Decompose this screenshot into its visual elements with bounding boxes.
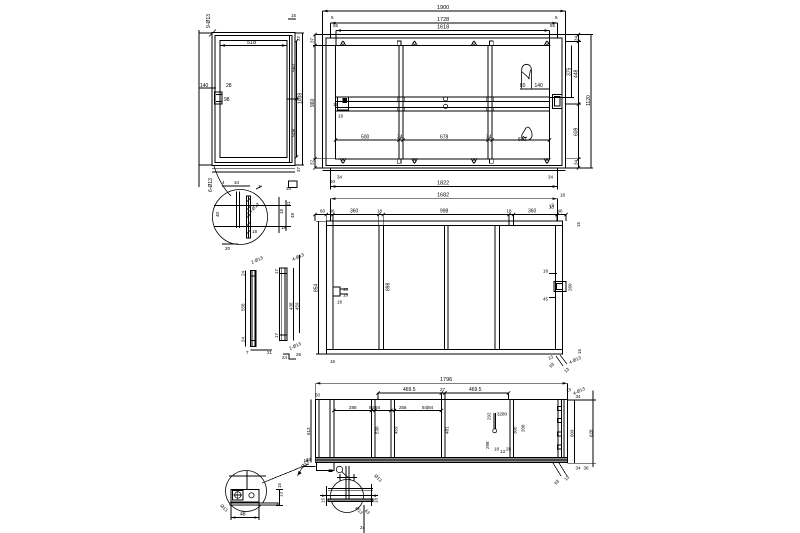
svg-text:140: 140 (200, 83, 209, 89)
svg-text:37: 37 (310, 159, 315, 165)
svg-text:500: 500 (361, 135, 370, 141)
svg-text:15: 15 (576, 221, 581, 227)
svg-text:298: 298 (485, 441, 490, 449)
svg-text:11: 11 (333, 102, 338, 107)
svg-text:469.5: 469.5 (403, 387, 416, 393)
svg-text:28: 28 (506, 447, 512, 452)
svg-text:37: 37 (296, 166, 301, 172)
svg-text:3280: 3280 (497, 412, 508, 417)
svg-text:84|84: 84|84 (422, 405, 434, 410)
svg-text:558: 558 (241, 303, 246, 311)
svg-text:50: 50 (330, 179, 336, 184)
svg-text:60: 60 (320, 209, 326, 214)
svg-text:17: 17 (274, 268, 279, 274)
svg-text:55: 55 (333, 23, 339, 28)
svg-text:34: 34 (576, 466, 582, 471)
svg-text:37: 37 (296, 35, 301, 41)
svg-text:20: 20 (225, 246, 231, 251)
svg-text:34: 34 (548, 175, 554, 180)
svg-text:6-Ø13: 6-Ø13 (208, 178, 214, 192)
svg-text:1728: 1728 (437, 17, 449, 23)
svg-text:9-Ø13: 9-Ø13 (206, 14, 212, 28)
svg-text:15: 15 (291, 13, 297, 18)
svg-text:288: 288 (349, 405, 357, 410)
svg-text:15: 15 (321, 497, 326, 503)
svg-text:459: 459 (394, 426, 399, 434)
svg-text:21: 21 (267, 350, 273, 355)
svg-text:609: 609 (570, 429, 575, 437)
svg-text:305: 305 (513, 426, 518, 434)
svg-text:854: 854 (314, 283, 320, 292)
svg-text:508: 508 (292, 128, 298, 137)
svg-text:469.5: 469.5 (469, 387, 482, 393)
svg-text:15: 15 (577, 348, 582, 354)
svg-text:46: 46 (558, 209, 564, 214)
svg-text:15: 15 (277, 482, 282, 488)
svg-text:18: 18 (560, 193, 566, 198)
svg-text:18: 18 (377, 209, 383, 214)
svg-text:24: 24 (241, 336, 246, 342)
svg-text:40: 40 (343, 287, 349, 292)
svg-text:18: 18 (507, 209, 513, 214)
svg-text:613: 613 (306, 427, 311, 435)
svg-text:898: 898 (386, 282, 392, 291)
svg-text:1796: 1796 (440, 377, 452, 383)
svg-text:530: 530 (375, 426, 380, 434)
svg-text:48: 48 (240, 512, 246, 518)
svg-text:459: 459 (295, 302, 300, 310)
svg-text:84|84: 84|84 (369, 405, 381, 410)
svg-text:1120: 1120 (586, 95, 592, 106)
svg-text:18: 18 (374, 497, 379, 503)
svg-text:448: 448 (574, 69, 580, 78)
svg-text:16: 16 (279, 208, 284, 214)
svg-text:18: 18 (543, 269, 549, 274)
svg-text:560: 560 (292, 63, 298, 72)
svg-text:48: 48 (290, 212, 295, 218)
svg-text:998: 998 (440, 209, 449, 215)
svg-text:375: 375 (567, 67, 573, 76)
svg-text:13: 13 (279, 491, 284, 497)
svg-text:46: 46 (330, 209, 336, 214)
svg-text:678: 678 (440, 135, 449, 141)
svg-text:18: 18 (494, 447, 500, 452)
svg-text:27: 27 (440, 387, 446, 392)
svg-text:1682: 1682 (437, 193, 449, 199)
svg-text:34: 34 (286, 186, 292, 191)
svg-text:481: 481 (445, 426, 450, 434)
svg-text:36: 36 (584, 466, 590, 471)
svg-text:208: 208 (521, 424, 526, 432)
svg-text:24: 24 (241, 270, 246, 276)
svg-text:960: 960 (310, 98, 316, 107)
svg-text:628: 628 (588, 429, 593, 437)
svg-text:28: 28 (226, 83, 232, 89)
svg-text:40: 40 (215, 211, 220, 217)
svg-text:24: 24 (282, 355, 288, 360)
svg-text:17: 17 (274, 332, 279, 338)
svg-text:50: 50 (315, 393, 321, 398)
svg-text:24: 24 (360, 525, 366, 530)
svg-text:80: 80 (520, 83, 526, 89)
svg-text:34: 34 (574, 159, 579, 165)
svg-text:18: 18 (304, 458, 310, 463)
svg-text:18: 18 (337, 300, 343, 305)
svg-text:26: 26 (296, 352, 302, 357)
svg-text:34: 34 (486, 135, 492, 141)
svg-text:37: 37 (310, 37, 315, 43)
svg-text:18: 18 (343, 293, 349, 298)
svg-text:18: 18 (338, 114, 344, 119)
svg-text:1618: 1618 (437, 25, 449, 31)
svg-text:292: 292 (487, 412, 492, 420)
svg-text:360: 360 (528, 209, 537, 215)
svg-text:360: 360 (350, 209, 359, 215)
svg-text:1038: 1038 (298, 93, 304, 104)
svg-text:34: 34 (234, 180, 240, 185)
svg-text:18: 18 (252, 229, 258, 234)
svg-text:256: 256 (399, 405, 407, 410)
svg-text:438: 438 (289, 302, 294, 310)
svg-text:34: 34 (574, 35, 579, 41)
svg-text:13: 13 (500, 449, 506, 454)
svg-text:45: 45 (543, 297, 549, 302)
svg-text:518: 518 (247, 40, 256, 46)
svg-text:98: 98 (224, 97, 230, 103)
svg-text:16: 16 (330, 359, 336, 364)
svg-text:140: 140 (535, 83, 544, 89)
svg-text:260: 260 (568, 283, 573, 291)
svg-text:609: 609 (574, 127, 580, 136)
svg-text:1900: 1900 (437, 5, 449, 11)
svg-text:1822: 1822 (437, 181, 449, 187)
svg-text:34: 34 (397, 135, 403, 141)
svg-text:55: 55 (550, 23, 556, 28)
svg-text:34: 34 (337, 175, 343, 180)
